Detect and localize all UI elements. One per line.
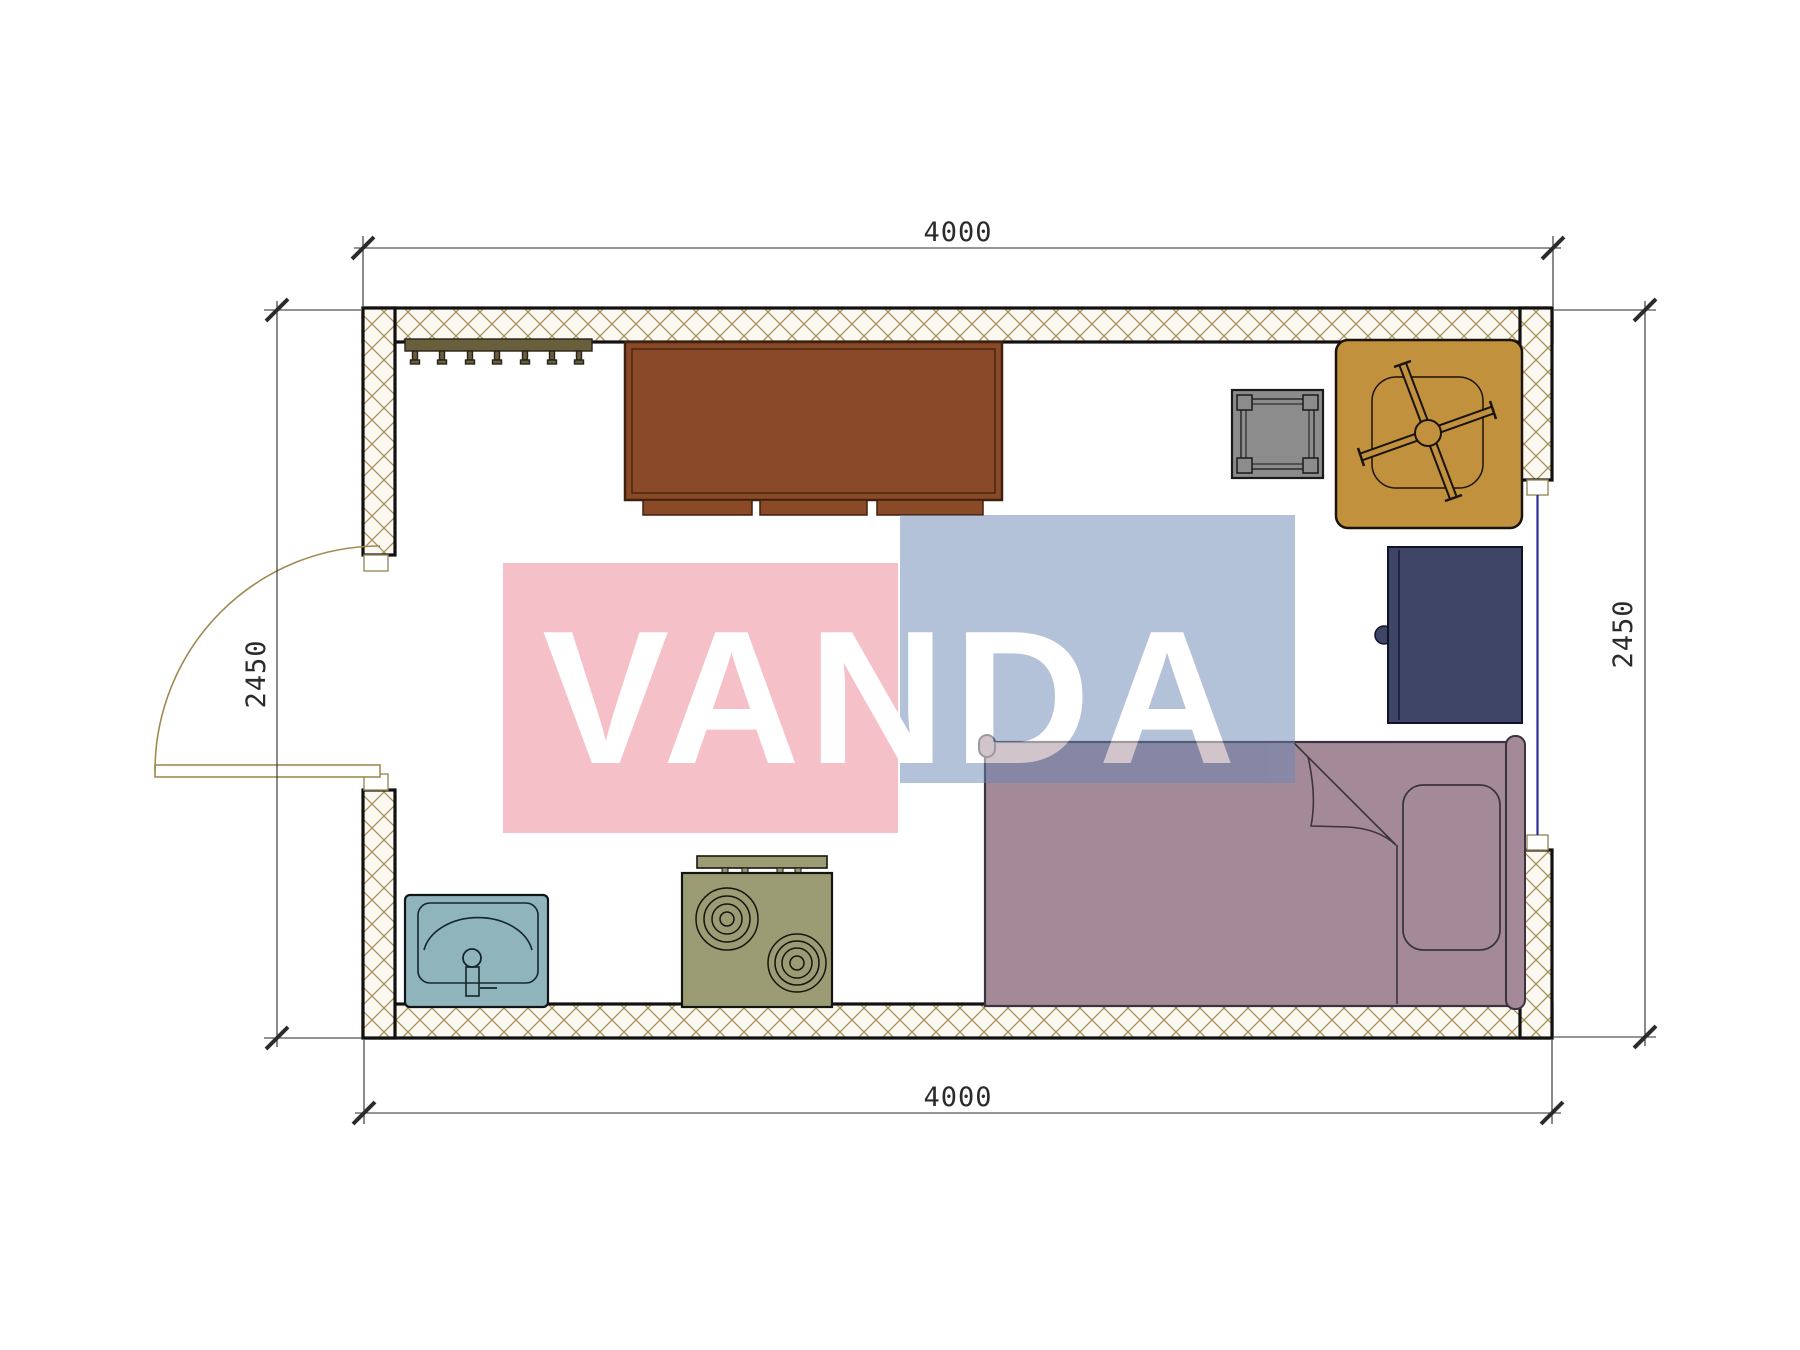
hook-foot [548, 360, 557, 364]
hook-foot [521, 360, 530, 364]
stool [1232, 390, 1323, 478]
wardrobe-tab [643, 500, 752, 515]
dimension-bottom: 4000 [353, 1040, 1563, 1124]
dimension-right: 2450 [1554, 299, 1656, 1048]
swivel-armchair [1336, 340, 1522, 528]
dimension-top: 4000 [352, 217, 1564, 306]
window [1527, 480, 1548, 850]
wall-bottom [363, 1004, 1552, 1038]
hook [440, 351, 445, 360]
window-jamb-top [1527, 480, 1548, 495]
hook [468, 351, 473, 360]
hook [495, 351, 500, 360]
nightstand [1375, 547, 1522, 723]
dimension-label-bottom: 4000 [923, 1082, 992, 1113]
wall-right-upper [1520, 308, 1552, 480]
hook-foot [438, 360, 447, 364]
stool-leg [1237, 458, 1252, 473]
stove-back-panel [697, 856, 827, 868]
watermark-text: VANDA [542, 592, 1243, 804]
stool-leg [1237, 395, 1252, 410]
hook [523, 351, 528, 360]
stool-leg [1303, 458, 1318, 473]
dimension-left: 2450 [241, 299, 362, 1049]
hook [413, 351, 418, 360]
hook-foot [411, 360, 420, 364]
hook [550, 351, 555, 360]
wardrobe-tab [760, 500, 867, 515]
window-jamb-bottom [1527, 835, 1548, 850]
cross-base-hub [1415, 420, 1441, 446]
wall-left-upper [363, 308, 395, 555]
nightstand-body [1388, 547, 1522, 723]
door-leaf [155, 765, 380, 777]
stool-leg [1303, 395, 1318, 410]
dimension-label-top: 4000 [923, 217, 992, 248]
wardrobe-body [625, 342, 1002, 500]
wardrobe-tab [877, 500, 983, 515]
dimension-label-left: 2450 [241, 639, 272, 708]
coat-rack-bar [405, 339, 592, 351]
two-burner-stove [682, 856, 832, 1007]
wall-left-lower [363, 790, 395, 1038]
hook [577, 351, 582, 360]
floor-plan-drawing: 4000 4000 2450 2450 [0, 0, 1800, 1350]
wardrobe-cabinet [625, 342, 1002, 515]
bed-rail-right [1506, 736, 1525, 1009]
hook-foot [466, 360, 475, 364]
hook-foot [575, 360, 584, 364]
hook-foot [493, 360, 502, 364]
sink [405, 895, 548, 1007]
door-jamb-top [364, 555, 388, 571]
floor-plan-canvas: 4000 4000 2450 2450 [0, 0, 1800, 1350]
dimension-label-right: 2450 [1608, 599, 1639, 668]
wall-top [363, 308, 1552, 342]
